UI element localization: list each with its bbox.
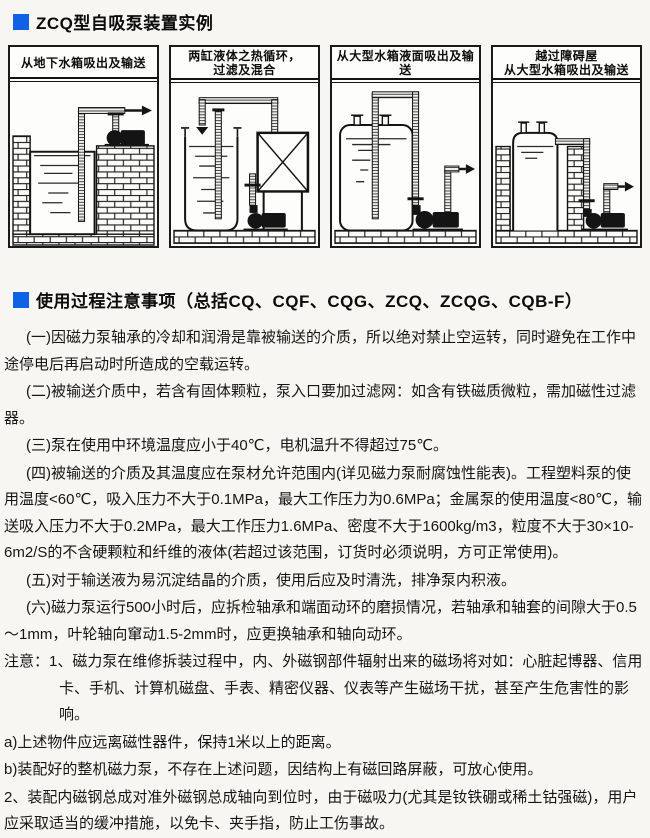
discharge-pipe: [604, 183, 618, 189]
brick-floor: [496, 230, 637, 243]
note-paragraph-5: (五)对于输送液为易沉淀结晶的介质，使用后应及时清洗，排净泵内积液。: [4, 568, 645, 595]
caution-item-b: b)装配好的整机磁力泵，不存在上述问题，因结构上有磁回路屏蔽，可放心使用。: [4, 757, 645, 784]
storage-tank: [513, 133, 557, 231]
dip-tube: [215, 111, 221, 218]
large-tank-diagram: [332, 84, 479, 246]
caution-block: 注意：1、磁力泵在维修拆装过程中，内、外磁钢部件辐射出来的磁场将对如：心脏起博器…: [4, 649, 645, 838]
installation-examples-row: 从地下水箱吸出及输送: [0, 45, 650, 248]
diagram-title: 从地下水箱吸出及输送: [10, 47, 157, 79]
note-paragraph-4: (四)被输送的介质及其温度应在泵材允许范围内(详见磁力泵耐腐蚀性能表)。工程塑料…: [4, 461, 645, 567]
brick-column-obstacle: [568, 146, 584, 230]
pump-icon: [243, 205, 287, 231]
caution-item-1-text: 1、磁力泵在维修拆装过程中，内、外磁钢部件辐射出来的磁场将对如：心脏起博器、信用…: [49, 653, 642, 723]
diagram-title: 越过障碍屋 从大型水箱吸出及输送: [493, 47, 640, 80]
blue-square-bullet-icon: [13, 292, 29, 308]
flow-arrow-icon: [142, 106, 152, 116]
caution-item-2: 2、装配内磁钢总成对准外磁钢总成轴向到位时，由于磁吸力(尤其是钕铁硼或稀土钴强磁…: [4, 785, 645, 838]
suction-down-pipe: [413, 92, 419, 205]
down-arrow-icon: [196, 127, 208, 135]
caution-item-1: 注意：1、磁力泵在维修拆装过程中，内、外磁钢部件辐射出来的磁场将对如：心脏起博器…: [4, 649, 645, 729]
section2-title: 使用过程注意事项（总括CQ、CQF、CQG、ZCQ、ZCQG、CQB-F）: [36, 287, 582, 312]
filter-feed-pipe: [272, 99, 278, 132]
caution-label: 注意：: [4, 653, 49, 670]
suction-down-pipe: [584, 139, 590, 209]
return-pipe: [199, 99, 205, 124]
tank-rim-stubs: [181, 128, 241, 137]
brick-wall-right: [97, 146, 154, 234]
pump-inlet-pipe: [250, 174, 256, 205]
catalog-page: ZCQ型自吸泵装置实例 从地下水箱吸出及输送: [0, 0, 650, 776]
title-divider: [332, 80, 479, 83]
valve-handle-icon: [245, 183, 261, 186]
over-top-pipe: [372, 92, 418, 98]
flow-arrow-icon: [625, 182, 634, 192]
valve-handle-icon: [408, 197, 424, 200]
pump-icon: [413, 205, 463, 231]
note-paragraph-1: (一)因磁力泵轴承的冷却和润滑是靠被输送的介质，所以绝对禁止空运转，同时避免在工…: [4, 325, 645, 378]
diagram-panel-circulation: 两缸液体之热循环， 过滤及混合: [169, 45, 320, 248]
discharge-riser: [604, 187, 610, 212]
section1-header: ZCQ型自吸泵装置实例: [0, 0, 650, 34]
over-obstacle-diagram: [493, 84, 640, 246]
usage-notes: (一)因磁力泵轴承的冷却和润滑是靠被输送的介质，所以绝对禁止空运转，同时避免在工…: [0, 325, 650, 838]
note-paragraph-6: (六)磁力泵运行500小时后，应拆检轴承和端面动环的磨损情况，若轴承和轴套的间隙…: [4, 595, 645, 648]
pump-icon: [105, 130, 149, 146]
brick-column-left: [496, 146, 510, 230]
discharge-riser: [445, 170, 451, 213]
flow-arrow-icon: [466, 164, 475, 174]
discharge-pipe: [445, 166, 459, 172]
open-tank: [185, 137, 237, 231]
brick-floor: [335, 230, 476, 243]
section1-title: ZCQ型自吸泵装置实例: [36, 9, 213, 34]
top-circulation-pipe: [199, 98, 278, 104]
title-divider: [493, 80, 640, 83]
tank-neck-stubs: [518, 122, 547, 133]
dip-tube-cap: [212, 108, 224, 111]
tank-neck-stubs: [351, 115, 391, 125]
diagram-title: 两缸液体之热循环， 过滤及混合: [171, 47, 318, 80]
dip-tube: [372, 94, 378, 219]
note-paragraph-3: (三)泵在使用中环境温度应小于40℃，电机温升不得超过75℃。: [4, 433, 645, 460]
brick-floor: [174, 230, 315, 243]
valve-stub-pipe: [113, 113, 119, 131]
diagram-panel-over-obstacle: 越过障碍屋 从大型水箱吸出及输送: [491, 45, 642, 248]
section2-header: 使用过程注意事项（总括CQ、CQF、CQG、ZCQ、ZCQG、CQB-F）: [0, 278, 650, 312]
circulation-diagram: [171, 84, 318, 246]
valve-handle-icon: [579, 199, 595, 202]
blue-square-bullet-icon: [13, 14, 29, 30]
title-divider: [171, 80, 318, 83]
underground-tank-diagram: [10, 83, 157, 246]
brick-wall-left: [13, 136, 30, 234]
diagram-panel-large-tank: 从大型水箱液面吸出及输送: [330, 45, 481, 248]
diagram-title: 从大型水箱液面吸出及输送: [332, 47, 479, 80]
note-paragraph-2: (二)被输送介质中，若含有固体颗粒，泵入口要加过滤网：如含有铁磁质微粒，需加磁性…: [4, 379, 645, 432]
title-divider: [10, 79, 157, 82]
valve-handle-icon: [108, 112, 124, 115]
diagram-panel-underground-tank: 从地下水箱吸出及输送: [8, 45, 159, 248]
caution-item-a: a)上述物件应远离磁性器件，保持1米以上的距离。: [4, 730, 645, 757]
suction-pipe: [78, 110, 84, 222]
brick-floor: [13, 234, 154, 245]
